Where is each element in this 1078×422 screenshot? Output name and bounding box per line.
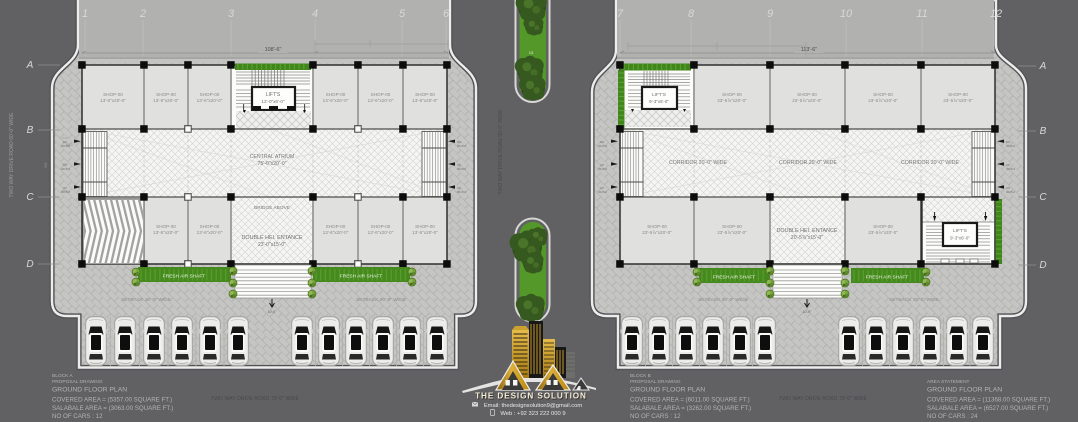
svg-text:12: 12 (990, 8, 1002, 20)
svg-text:NO OF CARS : 12: NO OF CARS : 12 (630, 413, 681, 420)
svg-text:SHOP-00: SHOP-00 (371, 224, 391, 229)
svg-text:FRESH AIR SHAFT: FRESH AIR SHAFT (340, 274, 382, 280)
svg-text:23'-0"x15'-0": 23'-0"x15'-0" (258, 242, 286, 248)
svg-text:13'-6"x20'-0": 13'-6"x20'-0" (323, 98, 349, 103)
svg-text:10: 10 (840, 8, 853, 20)
svg-text:AREA STATEMENT: AREA STATEMENT (927, 379, 970, 385)
svg-text:LIFT'S: LIFT'S (953, 228, 967, 234)
svg-text:13'-6"x20'-0": 13'-6"x20'-0" (412, 230, 438, 235)
svg-text:COVERED AREA = (11368.00 SQUAR: COVERED AREA = (11368.00 SQUARE FT.) (927, 397, 1050, 404)
svg-text:SHOP-00: SHOP-00 (647, 224, 667, 229)
svg-text:BLOCK A: BLOCK A (52, 373, 73, 379)
svg-text:SHOP-00: SHOP-00 (326, 224, 346, 229)
svg-text:10'-0": 10'-0" (268, 310, 277, 314)
svg-text:PROPOSAL DRAWING: PROPOSAL DRAWING (630, 379, 681, 385)
svg-text:NO OF CARS : 24: NO OF CARS : 24 (927, 413, 978, 420)
svg-text:GROUND FLOOR PLAN: GROUND FLOOR PLAN (630, 387, 705, 394)
svg-text:13'-6"x20'-0": 13'-6"x20'-0" (368, 230, 394, 235)
svg-text:23'-5⅞"x20'-0": 23'-5⅞"x20'-0" (868, 98, 898, 103)
svg-text:SHOP-00: SHOP-00 (103, 92, 123, 97)
svg-text:2: 2 (139, 8, 146, 20)
svg-text:50': 50' (43, 162, 48, 167)
svg-text:SHOP-00: SHOP-00 (873, 92, 893, 97)
svg-text:30x5-0: 30x5-0 (457, 144, 467, 148)
svg-text:9: 9 (767, 8, 773, 20)
svg-text:Web : +92 323 222 000 9: Web : +92 323 222 000 9 (500, 411, 565, 417)
svg-text:DOUBLE HEI. ENTANCE: DOUBLE HEI. ENTANCE (776, 228, 837, 234)
svg-text:CORRIDOR 20'-0" WIDE: CORRIDOR 20'-0" WIDE (669, 160, 727, 166)
svg-text:CORRIDOR 20'-0" WIDE: CORRIDOR 20'-0" WIDE (779, 160, 837, 166)
svg-text:11: 11 (916, 8, 927, 20)
svg-text:20'-5⅞"x15'-0": 20'-5⅞"x15'-0" (791, 235, 823, 241)
svg-text:23'-5⅞"x20'-0": 23'-5⅞"x20'-0" (642, 230, 672, 235)
svg-text:CORRIDOR 20'-0" WIDE: CORRIDOR 20'-0" WIDE (901, 160, 959, 166)
svg-text:13'-6"x20'-0": 13'-6"x20'-0" (197, 230, 223, 235)
svg-text:D: D (26, 259, 33, 270)
svg-text:BLOCK B: BLOCK B (630, 373, 651, 379)
svg-text:B: B (1040, 126, 1047, 137)
svg-text:SHOP-00: SHOP-00 (200, 224, 220, 229)
svg-text:TWO WAY DRIVE ROAD 60'-0" WID: TWO WAY DRIVE ROAD 60'-0" WIDE (9, 112, 15, 198)
svg-text:13'-6"x20'-0": 13'-6"x20'-0" (197, 98, 223, 103)
svg-text:SHOP-00: SHOP-00 (156, 224, 176, 229)
svg-text:LIFT'S: LIFT'S (266, 92, 281, 98)
svg-text:10'-0": 10'-0" (803, 310, 812, 314)
svg-text:GROUND FLOOR PLAN: GROUND FLOOR PLAN (927, 387, 1002, 394)
svg-text:BRIDGE ABOVE: BRIDGE ABOVE (254, 205, 290, 211)
svg-text:GROUND FLOOR PLAN: GROUND FLOOR PLAN (52, 387, 127, 394)
svg-text:TWO WAY DRIVE ROAD 50'-0" WID: TWO WAY DRIVE ROAD 50'-0" WIDE (498, 109, 504, 195)
svg-text:SHOP-00: SHOP-00 (200, 92, 220, 97)
svg-text:SALABALE AREA = (3063.00 SQUAR: SALABALE AREA = (3063.00 SQUARE FT.) (52, 405, 173, 412)
svg-text:COVERED AREA = (5357.00 SQUARE: COVERED AREA = (5357.00 SQUARE FT.) (52, 397, 172, 404)
svg-text:C: C (26, 192, 34, 203)
svg-text:13'-6"x20'-0": 13'-6"x20'-0" (153, 230, 179, 235)
svg-text:1: 1 (82, 8, 88, 20)
svg-text:13'-0"x20'-0": 13'-0"x20'-0" (100, 98, 126, 103)
svg-text:30x5-0: 30x5-0 (1006, 144, 1016, 148)
svg-text:23'-5⅞"x20'-0": 23'-5⅞"x20'-0" (792, 98, 822, 103)
svg-text:113'-6": 113'-6" (801, 47, 817, 53)
svg-text:A: A (26, 60, 34, 71)
svg-text:23'-5⅞"x20'-0": 23'-5⅞"x20'-0" (717, 230, 747, 235)
svg-text:30x5-0: 30x5-0 (457, 190, 467, 194)
svg-text:13'-6"x20'-0": 13'-6"x20'-0" (323, 230, 349, 235)
svg-text:FRESH AIR SHAFT: FRESH AIR SHAFT (163, 274, 205, 280)
svg-text:108'-6": 108'-6" (265, 47, 282, 53)
svg-text:12'-0"x6'-0": 12'-0"x6'-0" (261, 99, 285, 104)
svg-text:SHOP-00: SHOP-00 (415, 92, 435, 97)
svg-text:SHOP-00: SHOP-00 (722, 92, 742, 97)
svg-text:FRESH AIR SHAFT: FRESH AIR SHAFT (866, 275, 908, 281)
svg-text:A: A (1039, 61, 1047, 72)
svg-text:6: 6 (443, 8, 450, 20)
svg-text:THE DESIGN SOLUTION: THE DESIGN SOLUTION (475, 392, 587, 401)
svg-text:SHOP-00: SHOP-00 (156, 92, 176, 97)
svg-text:13'-6"x20'-0": 13'-6"x20'-0" (153, 98, 179, 103)
svg-text:SETBACK 30'-0" WIDE: SETBACK 30'-0" WIDE (356, 297, 406, 303)
svg-text:SETBACK 30'-0" WIDE: SETBACK 30'-0" WIDE (698, 297, 748, 303)
svg-text:30-0: 30-0 (66, 143, 73, 147)
svg-text:23'-5⅞"x20'-0": 23'-5⅞"x20'-0" (943, 98, 973, 103)
svg-text:SETBACK 30'-0" WIDE: SETBACK 30'-0" WIDE (889, 297, 939, 303)
svg-text:SHOP-00: SHOP-00 (873, 224, 893, 229)
svg-text:75'-0"x20'-0": 75'-0"x20'-0" (257, 161, 286, 167)
svg-text:SHOP-00: SHOP-00 (371, 92, 391, 97)
svg-text:SHOP-00: SHOP-00 (797, 92, 817, 97)
svg-text:CENTRAL ATRIUM: CENTRAL ATRIUM (250, 154, 295, 160)
svg-text:DOUBLE HEI. ENTANCE: DOUBLE HEI. ENTANCE (241, 235, 302, 241)
svg-text:13'-6"x20'-0": 13'-6"x20'-0" (368, 98, 394, 103)
svg-text:30x5-0: 30x5-0 (1006, 190, 1016, 194)
svg-text:4: 4 (312, 8, 318, 20)
svg-text:9'-3"x6'-0": 9'-3"x6'-0" (950, 236, 970, 241)
svg-text:SHOP-00: SHOP-00 (948, 92, 968, 97)
svg-text:SHOP-00: SHOP-00 (415, 224, 435, 229)
svg-text:30x5-0: 30x5-0 (598, 144, 608, 148)
svg-text:TWO WAY DRIVE ROAD 70'-0" WIDE: TWO WAY DRIVE ROAD 70'-0" WIDE (211, 396, 300, 402)
svg-text:SHOP-00: SHOP-00 (722, 224, 742, 229)
svg-text:SHOP-00: SHOP-00 (326, 92, 346, 97)
svg-text:9'-3"x5'-0": 9'-3"x5'-0" (649, 99, 669, 104)
svg-text:TWO WAY DRIVE ROAD 70'-0" WIDE: TWO WAY DRIVE ROAD 70'-0" WIDE (779, 396, 868, 402)
svg-text:30x5-0: 30x5-0 (61, 190, 71, 194)
svg-text:FRESH AIR SHAFT: FRESH AIR SHAFT (713, 275, 755, 281)
svg-text:13'-6"x20'-0": 13'-6"x20'-0" (412, 98, 438, 103)
svg-text:23'-5⅞"x20'-0": 23'-5⅞"x20'-0" (868, 230, 898, 235)
svg-text:30x5-0: 30x5-0 (598, 190, 608, 194)
svg-text:PROPOSAL DRAWING: PROPOSAL DRAWING (52, 379, 103, 385)
svg-text:30x5-0: 30x5-0 (598, 167, 608, 171)
svg-text:D: D (1039, 260, 1046, 271)
svg-text:30x5-0: 30x5-0 (457, 167, 467, 171)
svg-text:8: 8 (688, 8, 695, 20)
svg-text:NO OF CARS : 12: NO OF CARS : 12 (52, 413, 103, 420)
svg-text:Email: thedesignsolution9@gmai: Email: thedesignsolution9@gmail.com (484, 403, 583, 409)
svg-text:C: C (1039, 192, 1047, 203)
svg-text:3: 3 (228, 8, 235, 20)
svg-text:7: 7 (617, 8, 624, 20)
svg-text:30x5-0: 30x5-0 (61, 167, 71, 171)
svg-text:LIFT'S: LIFT'S (652, 92, 666, 98)
svg-text:23'-5⅞"x20'-0": 23'-5⅞"x20'-0" (717, 98, 747, 103)
svg-text:13: 13 (529, 50, 534, 55)
svg-text:SALABALE AREA = (6527.00 SQUAR: SALABALE AREA = (6527.00 SQUARE FT.) (927, 405, 1048, 412)
svg-text:5: 5 (399, 8, 406, 20)
svg-text:30x5-0: 30x5-0 (1006, 167, 1016, 171)
svg-text:COVERED AREA = (6011.00 SQUARE: COVERED AREA = (6011.00 SQUARE FT.) (630, 397, 750, 404)
svg-text:B: B (27, 125, 34, 136)
svg-text:SETBACK 30'-0" WIDE: SETBACK 30'-0" WIDE (121, 297, 171, 303)
svg-text:SALABALE AREA = (3262.00 SQUAR: SALABALE AREA = (3262.00 SQUARE FT.) (630, 405, 751, 412)
